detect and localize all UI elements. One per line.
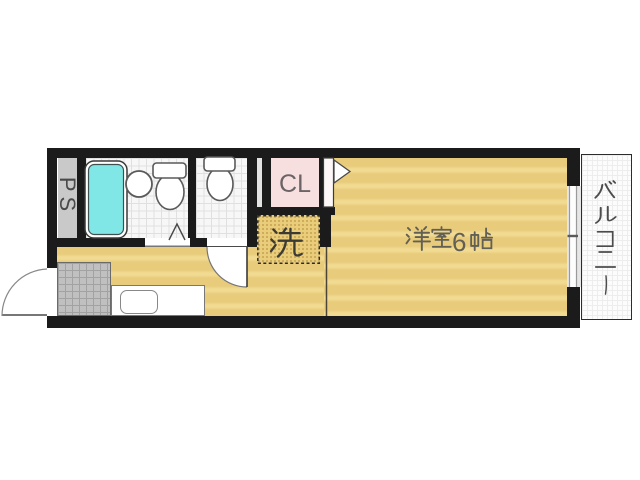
svg-text:6: 6 <box>452 227 466 257</box>
